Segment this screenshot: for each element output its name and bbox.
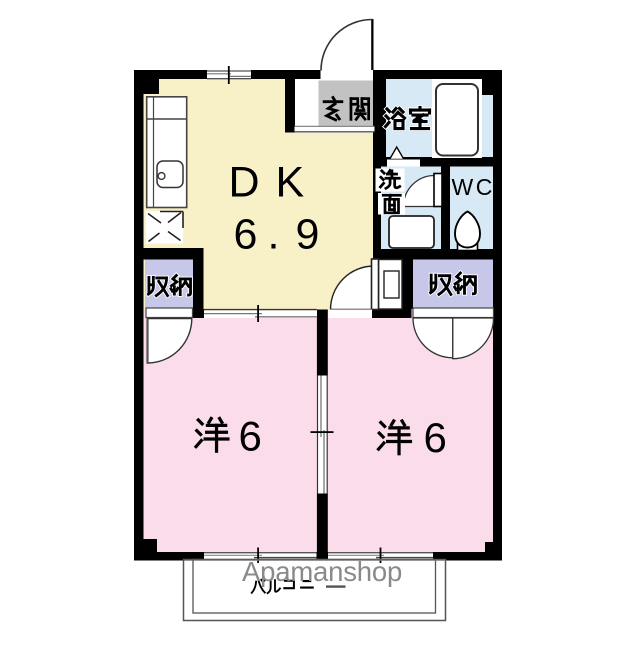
svg-text:K: K [276, 159, 305, 207]
svg-text:9: 9 [296, 211, 320, 259]
svg-text:6: 6 [234, 211, 258, 259]
svg-text:.: . [268, 211, 280, 259]
svg-text:Apamanshop: Apamanshop [242, 556, 402, 587]
svg-text:WC: WC [452, 174, 495, 200]
svg-text:D: D [229, 159, 260, 207]
svg-text:6: 6 [424, 414, 447, 461]
svg-text:6: 6 [239, 413, 262, 460]
